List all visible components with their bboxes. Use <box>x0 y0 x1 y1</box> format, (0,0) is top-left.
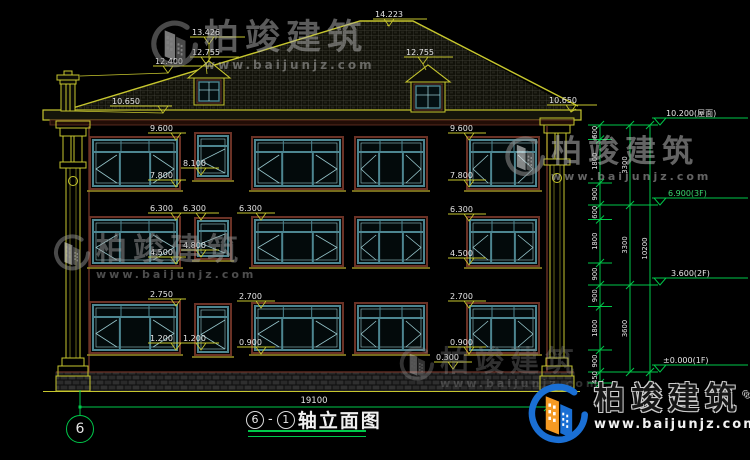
drawing-title-text: 轴立面图 <box>298 406 382 433</box>
svg-text:0.900: 0.900 <box>239 338 262 347</box>
axis-circle-from: 6 <box>246 411 264 429</box>
axis-bubble-6: 6 <box>66 415 94 443</box>
svg-text:8.100: 8.100 <box>183 159 206 168</box>
level-marker: 3.600(2F) <box>652 269 748 285</box>
svg-text:13.426: 13.426 <box>192 28 220 37</box>
dim-text: 3600 <box>621 320 629 337</box>
svg-text:14.223: 14.223 <box>375 10 403 19</box>
dimension-chain: 6001800900600180090090018009004503300330… <box>588 121 658 394</box>
svg-text:7.800: 7.800 <box>150 171 173 180</box>
window <box>192 304 234 357</box>
dim-text: 450 <box>591 371 599 384</box>
svg-text:6.300: 6.300 <box>450 205 473 214</box>
svg-text:6.900(3F): 6.900(3F) <box>668 189 707 198</box>
window <box>352 303 430 355</box>
svg-text:6.300: 6.300 <box>183 204 206 213</box>
svg-text:12.400: 12.400 <box>155 57 183 66</box>
level-marker: ±0.000(1F) <box>652 356 748 372</box>
dim-text: 3300 <box>621 156 629 173</box>
window <box>192 218 234 261</box>
dim-text: 1800 <box>591 320 599 337</box>
svg-text:7.800: 7.800 <box>450 171 473 180</box>
level-markers-right: 10.200(屋面)6.900(3F)3.600(2F)±0.000(1F) <box>652 109 748 372</box>
svg-text:2.750: 2.750 <box>150 290 173 299</box>
elevation-drawing-canvas: 12.40010.65013.42612.75514.22312.75510.6… <box>0 0 750 460</box>
svg-text:12.755: 12.755 <box>406 48 434 57</box>
svg-text:1.200: 1.200 <box>150 334 173 343</box>
window <box>192 133 234 181</box>
axis-separator: - <box>268 412 273 427</box>
drawing-title: 6 - 1 轴立面图 <box>246 406 382 433</box>
hip-roof <box>66 21 578 110</box>
svg-text:2.700: 2.700 <box>239 292 262 301</box>
svg-text:1.200: 1.200 <box>183 334 206 343</box>
svg-text:9.600: 9.600 <box>450 124 473 133</box>
svg-text:6.300: 6.300 <box>150 204 173 213</box>
window <box>87 137 183 191</box>
level-marker: 10.200(屋面) <box>652 109 748 125</box>
svg-text:4.500: 4.500 <box>150 248 173 257</box>
dim-text: 10200 <box>641 237 649 259</box>
cad-elevation-screenshot: 12.40010.65013.42612.75514.22312.75510.6… <box>0 0 750 460</box>
level-marker: 6.900(3F) <box>652 189 748 205</box>
window <box>249 137 346 191</box>
pilaster-left <box>56 121 90 391</box>
svg-text:12.755: 12.755 <box>192 48 220 57</box>
svg-text:2.700: 2.700 <box>450 292 473 301</box>
window <box>87 217 183 268</box>
svg-text:0.900: 0.900 <box>450 338 473 347</box>
window <box>87 302 183 355</box>
window <box>352 137 430 191</box>
svg-text:10.650: 10.650 <box>112 97 140 106</box>
svg-text:10.200(屋面): 10.200(屋面) <box>666 109 716 118</box>
svg-text:0.300: 0.300 <box>436 353 459 362</box>
dim-text: 900 <box>591 289 599 302</box>
dim-text: 900 <box>591 355 599 368</box>
title-underline <box>248 430 366 437</box>
window <box>352 217 430 268</box>
svg-text:10.650: 10.650 <box>549 96 577 105</box>
total-width-dim: 19100 <box>300 396 327 406</box>
svg-text:4.800: 4.800 <box>183 241 206 250</box>
window <box>464 217 542 268</box>
svg-text:4.500: 4.500 <box>450 249 473 258</box>
axis-circle-to: 1 <box>277 411 295 429</box>
dim-text: 1800 <box>591 233 599 250</box>
dim-text: 900 <box>591 268 599 281</box>
window <box>464 137 542 191</box>
plinth <box>43 372 580 392</box>
dim-text: 1800 <box>591 153 599 170</box>
svg-text:±0.000(1F): ±0.000(1F) <box>663 356 709 365</box>
dim-text: 3300 <box>621 236 629 253</box>
svg-text:9.600: 9.600 <box>150 124 173 133</box>
windows <box>87 133 542 357</box>
window <box>249 217 346 268</box>
svg-text:3.600(2F): 3.600(2F) <box>671 269 710 278</box>
dim-text: 600 <box>591 126 599 139</box>
chimney <box>57 71 79 111</box>
dim-text: 600 <box>591 206 599 219</box>
svg-text:6.300: 6.300 <box>239 204 262 213</box>
dim-text: 900 <box>591 188 599 201</box>
